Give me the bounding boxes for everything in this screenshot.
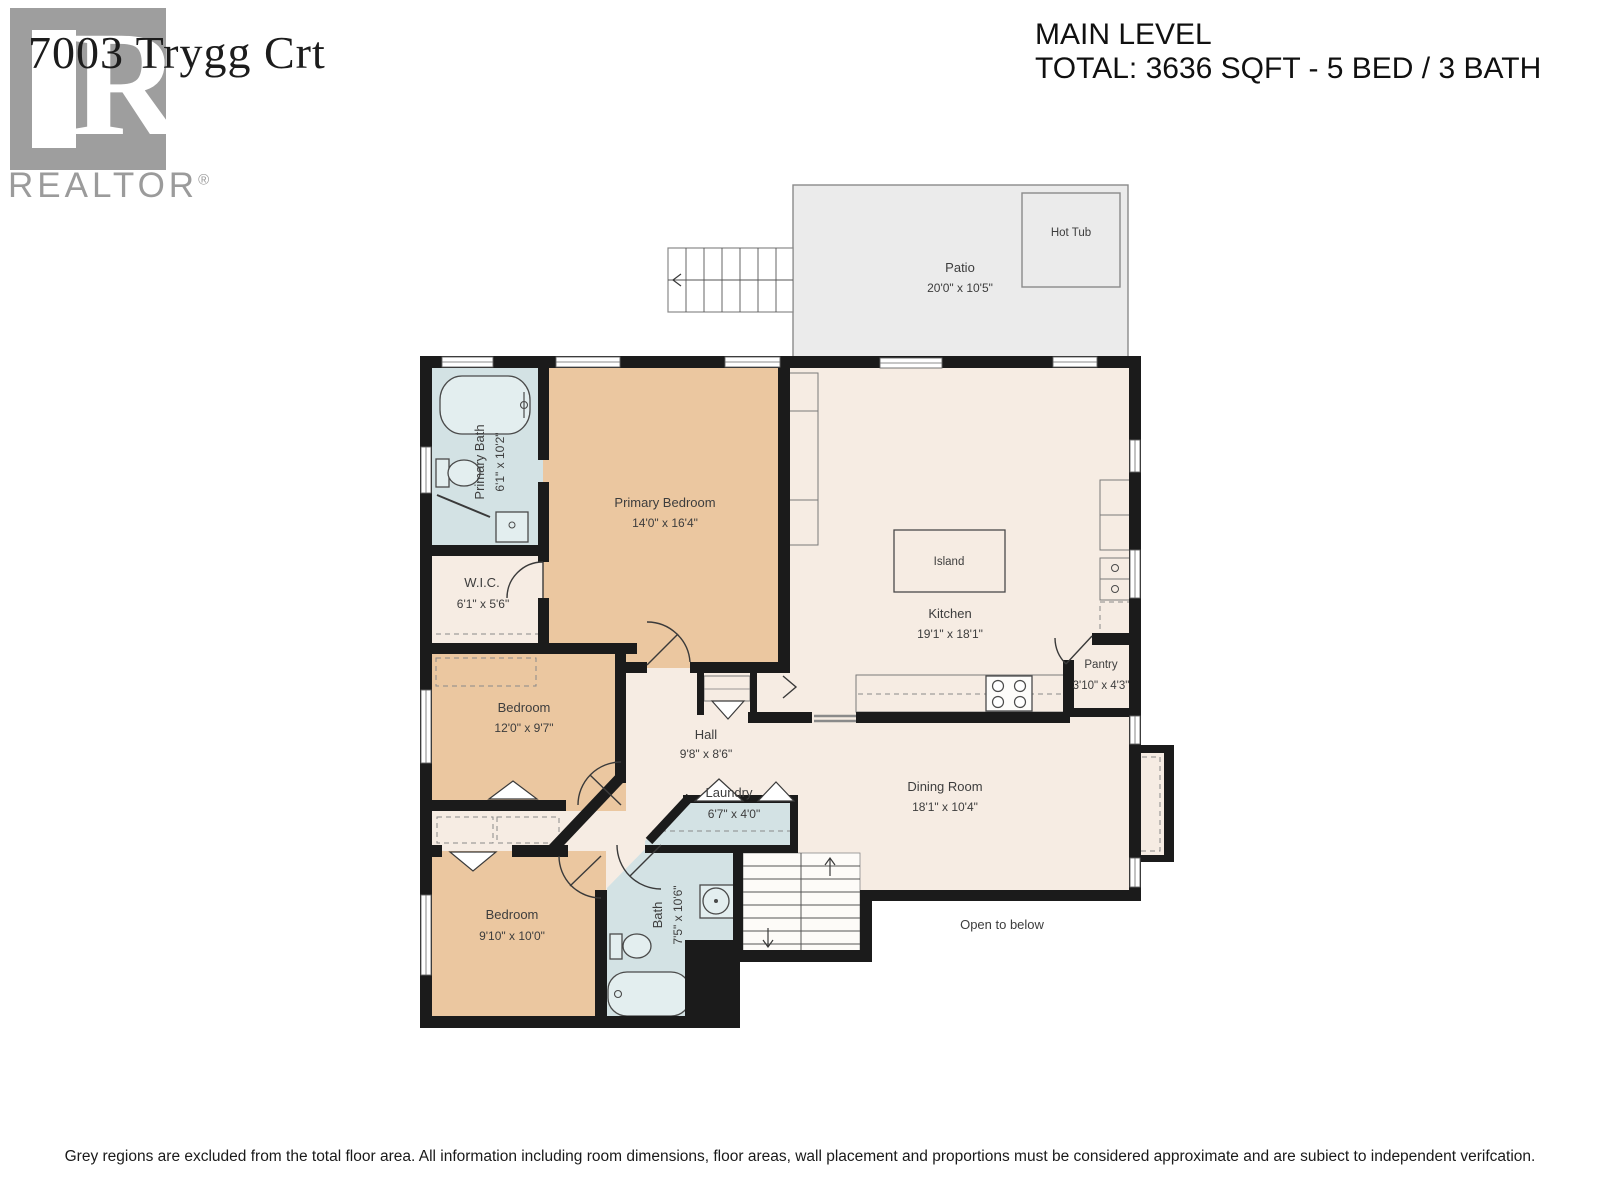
disclaimer-text: Grey regions are excluded from the total…	[0, 1148, 1600, 1166]
label-bedroom3-dims: 9'10" x 10'0"	[479, 929, 545, 943]
wall-oven-icon	[1100, 579, 1130, 600]
label-bedroom3: Bedroom	[486, 907, 539, 922]
label-primary-bath-dims: 6'1" x 10'2"	[493, 432, 507, 491]
stove-icon	[986, 676, 1032, 711]
label-bath2-dims: 7'5" x 10'6"	[671, 885, 685, 944]
fridge-icon	[1100, 480, 1130, 515]
floorplan-drawing: Patio 20'0" x 10'5" Hot Tub Primary Bath…	[0, 0, 1600, 1200]
cabinet-icon	[1100, 515, 1130, 550]
label-laundry: Laundry	[706, 785, 753, 800]
label-hall: Hall	[695, 727, 718, 742]
label-patio: Patio	[945, 260, 975, 275]
label-open-to-below: Open to below	[960, 917, 1044, 932]
label-wic-dims: 6'1" x 5'6"	[457, 597, 509, 611]
label-wic: W.I.C.	[464, 575, 499, 590]
bathtub2-icon	[608, 972, 690, 1016]
label-laundry-dims: 6'7" x 4'0"	[708, 807, 760, 821]
hot-tub-icon	[1022, 193, 1120, 287]
label-primary-bedroom-dims: 14'0" x 16'4"	[632, 516, 698, 530]
room-primary-bedroom-fill	[543, 362, 783, 668]
label-bedroom2: Bedroom	[498, 700, 551, 715]
label-primary-bedroom: Primary Bedroom	[614, 495, 715, 510]
toilet2-icon	[623, 934, 651, 958]
toilet2-tank-icon	[610, 934, 622, 959]
label-dining-dims: 18'1" x 10'4"	[912, 800, 978, 814]
label-hall-dims: 9'8" x 8'6"	[680, 747, 732, 761]
label-island: Island	[934, 556, 965, 568]
label-dining: Dining Room	[907, 779, 982, 794]
patio-area	[668, 185, 1128, 365]
floorplan-page: R 7003 Trygg Crt REALTOR® MAIN LEVEL TOT…	[0, 0, 1600, 1200]
toilet-tank-icon	[436, 459, 449, 487]
label-pantry: Pantry	[1084, 659, 1117, 671]
label-patio-dims: 20'0" x 10'5"	[927, 281, 993, 295]
label-bath2: Bath	[650, 902, 665, 929]
label-pantry-dims: 3'10" x 4'3"	[1073, 680, 1130, 692]
patio-stairs-icon	[668, 248, 793, 312]
label-kitchen: Kitchen	[928, 606, 971, 621]
label-kitchen-dims: 19'1" x 18'1"	[917, 627, 983, 641]
vanity-sink-icon	[496, 512, 528, 542]
wall-oven-icon	[1100, 558, 1130, 579]
label-primary-bath: Primary Bath	[472, 424, 487, 499]
label-hot-tub: Hot Tub	[1051, 227, 1091, 239]
label-bedroom2-dims: 12'0" x 9'7"	[494, 721, 553, 735]
